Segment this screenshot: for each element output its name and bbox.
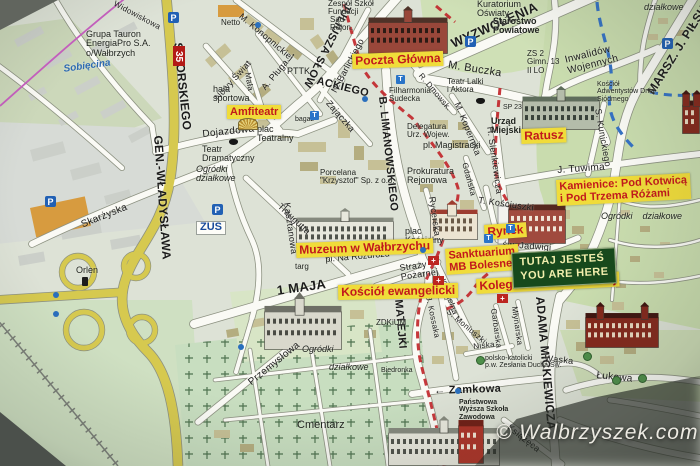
place-label-filharmonia: Filharmonia Sudecka [389,87,431,104]
stop-dot-icon [255,22,261,28]
street-label-niska: Niska [473,341,495,352]
parking-icon: P [662,38,673,49]
place-label-zesp-szk: Zespół Szkół Fundacji [328,0,374,17]
place-label-teatr-lalki: Teatr Lalki i Aktora [447,78,483,95]
place-label-hala: hala sportowa [213,85,250,104]
place-label-ko-ci: Kościół Adwentystów Dnia Siódmego [597,81,655,103]
church-cross-icon: + [433,276,444,285]
poi-label-ko-ci-ewangelicki: Kościół ewangelicki [338,283,458,300]
parking-icon: P [212,204,223,215]
taxi-icon: T [506,224,515,233]
street-label-gda-ska: Gdańska [460,162,477,197]
street-label-s-kunickiego: S. Kunickiego [593,108,613,168]
place-label-targ: targ [295,263,309,271]
tree-icon [583,352,592,361]
place-label-pa-stwowa: Państwowa Wyższa Szkoła Zawodowa [459,399,508,421]
place-label-ogr-dki: Ogródki [302,345,334,354]
stop-dot-icon [53,292,59,298]
place-label-orlen: Orlen [76,266,98,275]
stop-dot-icon [455,388,461,394]
map-photo-frame: SIKORSKIEGOGEN.-WŁADYSŁAWAJULIUSZA SŁOWA… [0,0,700,466]
watermark: © Walbrzyszek.com [496,421,698,445]
place-label-grupa-tauron: Grupa Tauron EnergiaPro S.A. o/Wałbrzych [86,30,151,58]
taxi-icon: T [484,234,493,243]
street-label-j-tuwima: J. Tuwima [557,163,605,177]
place-label-teatr: Teatr Dramatyczny [202,145,255,164]
place-label-pttk: PTTK [287,67,310,76]
gas-station-icon [82,277,88,286]
theater-masks-icon [229,139,238,145]
place-label-sp-23: SP 23 [503,104,522,111]
place-label-netto: Netto [221,19,240,27]
poi-label-ratusz: Ratusz [521,127,567,144]
parking-icon: P [45,196,56,207]
theater-masks-icon [476,98,485,104]
place-label-starostwo: Starostwo Powiatowe [493,17,540,36]
poi-label-amfiteatr: Amfiteatr [227,105,281,119]
street-label-j-kossaka: J. Kossaka [424,296,441,339]
you-are-here-marker: TUTAJ JESTEŚ YOU ARE HERE [511,247,617,288]
tree-icon [612,376,621,385]
street-label-gen-w-adys-awa: GEN.-WŁADYSŁAWA [151,135,172,260]
road-number-badge: 35 [173,46,185,66]
taxi-icon: T [310,111,319,120]
parking-icon: P [465,36,476,47]
place-label-sobi-cina: Sobięcina [63,58,111,75]
street-label-m-ynarska: Młynarska [510,306,524,346]
parking-icon: P [168,12,179,23]
place-label-dzia-kowe: działkowe [329,363,369,372]
church-cross-icon: + [497,294,508,303]
road-number-text: 35 [174,50,185,61]
stop-dot-icon [420,247,426,253]
place-label-zus: ZUS [196,221,226,235]
stop-dot-icon [53,311,59,317]
place-label-polsko-katolicki: polsko-katolicki p.w. Zesłania Ducha Św. [485,355,561,370]
street-label-b-limanowskiego: B. LIMANOWSKIEGO [376,96,400,212]
place-label-zs-2: ZS 2 Gimn. 13 II LO [527,50,559,75]
map-labels-layer: SIKORSKIEGOGEN.-WŁADYSŁAWAJULIUSZA SŁOWA… [0,0,700,466]
tree-icon [476,356,485,365]
place-label-biedronka: Biedronka [381,367,413,374]
place-label-prokuratura: Prokuratura Rejonowa [407,167,454,186]
place-label-porcelana: Porcelana "Krzysztof" Sp. z o.o. [320,169,395,186]
poi-label-kamienice-pod-kotwic: Kamienice: Pod Kotwicą i Pod Trzema Róża… [556,173,691,206]
poi-label-sanktuarium: Sanktuarium MB Bolesnej [445,244,519,275]
street-label-h-sienkiewicza: H. Sienkiewicza [485,126,504,195]
place-label-pl-magistracki: pl. Magistracki [423,141,481,150]
stop-dot-icon [238,344,244,350]
place-label-delegatura: Delegatura Urz. Wojew. [407,123,450,140]
place-label-urz-d: Urząd Miejski [491,117,521,136]
church-cross-icon: + [428,256,439,265]
street-label-zaj-czka: Zajączka [324,99,356,134]
street-label-zamkowa: ← Zamkowa [434,384,501,398]
place-label-ogr-dki-dzia-kowe: Ogródki działkowe [601,212,682,221]
place-label-s-d: Sąd Rejon. [330,16,353,33]
street-label-t-ko-ciuszki: T. Kościuszki [478,196,535,213]
street-label-1-maja: 1 MAJA [276,277,327,297]
place-label-cmentarz: Cmentarz [297,420,345,432]
place-label-dzia-kowe: działkowe [644,3,684,12]
place-label-plac: plac Teatralny [257,125,294,144]
poi-label-muzeum-w-wa-brzychu: Muzeum w Wałbrzychu [296,238,433,258]
stop-dot-icon [362,96,368,102]
street-label-widowiskowa: Widowiskowa [112,0,162,32]
tree-icon [638,374,647,383]
street-label-inwalid-w: Inwalidów Wojennych [564,43,620,76]
taxi-icon: T [396,75,405,84]
amphitheater-icon [238,118,258,130]
street-label-skar-yska: Skarżyska [80,203,129,231]
place-label-ogr-dki: Ogródki działkowe [196,165,236,184]
street-label-przemys-owa: Przemysłowa [247,341,302,389]
poi-label-poczta-g-wna: Poczta Główna [352,51,444,69]
place-label-zdkium: ZDKiUM [376,319,406,327]
